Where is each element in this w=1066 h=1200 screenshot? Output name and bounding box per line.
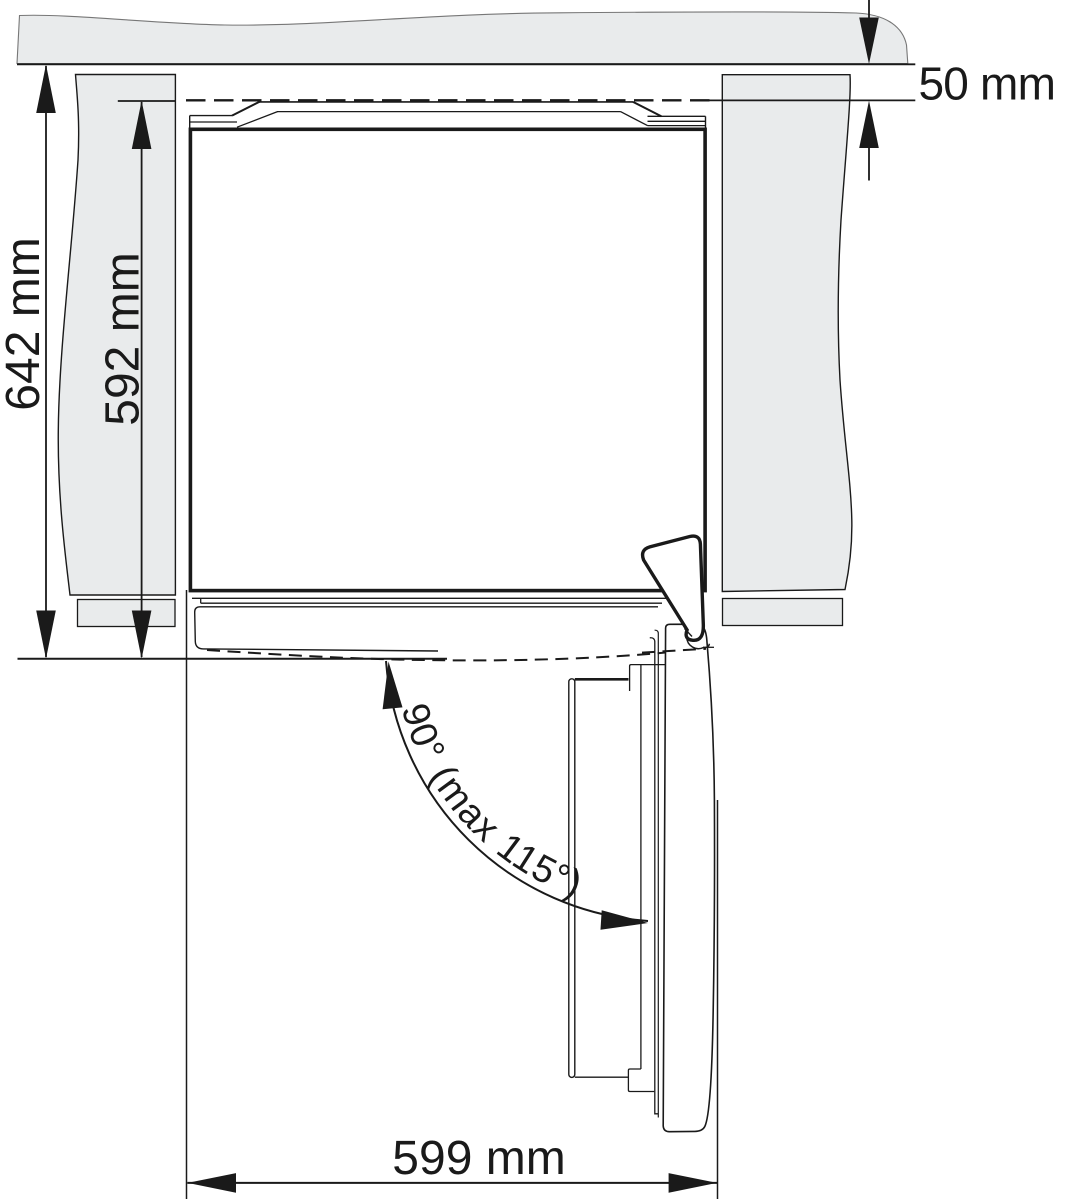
svg-text:642 mm: 642 mm bbox=[0, 237, 50, 410]
svg-text:90° (max 115°): 90° (max 115°) bbox=[393, 699, 589, 906]
svg-text:592 mm: 592 mm bbox=[97, 252, 150, 425]
svg-text:599 mm: 599 mm bbox=[392, 1132, 565, 1185]
svg-text:50 mm: 50 mm bbox=[919, 58, 1056, 110]
